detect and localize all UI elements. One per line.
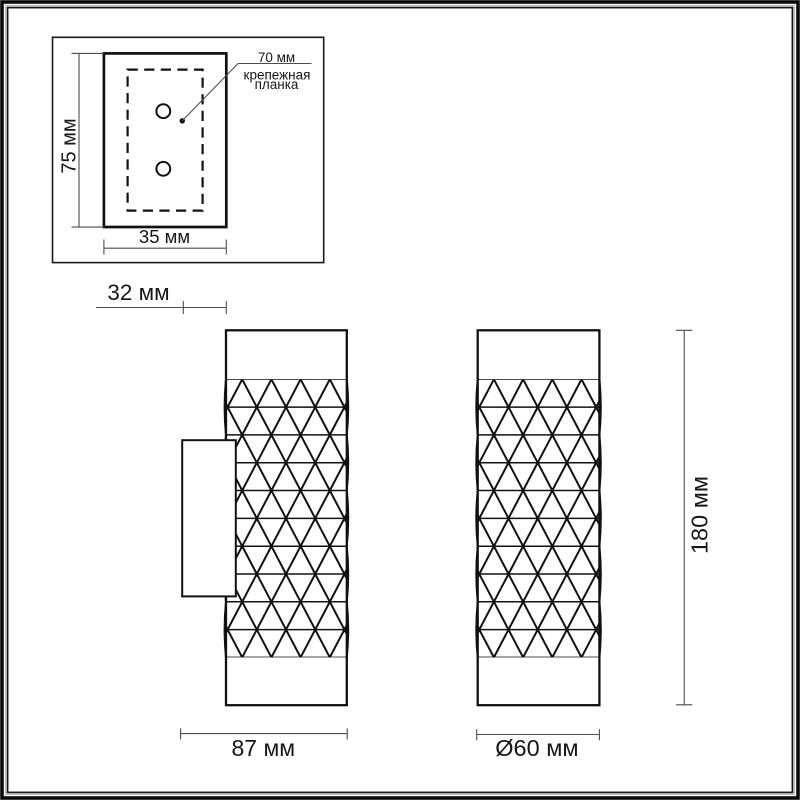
svg-text:87 мм: 87 мм <box>231 735 295 761</box>
svg-text:32 мм: 32 мм <box>107 280 169 305</box>
svg-text:70 мм: 70 мм <box>258 50 295 65</box>
svg-text:180 мм: 180 мм <box>687 476 713 554</box>
svg-text:35 мм: 35 мм <box>139 226 190 247</box>
svg-text:Ø60 мм: Ø60 мм <box>495 735 578 761</box>
svg-text:планка: планка <box>255 77 299 92</box>
svg-text:75 мм: 75 мм <box>59 118 81 173</box>
